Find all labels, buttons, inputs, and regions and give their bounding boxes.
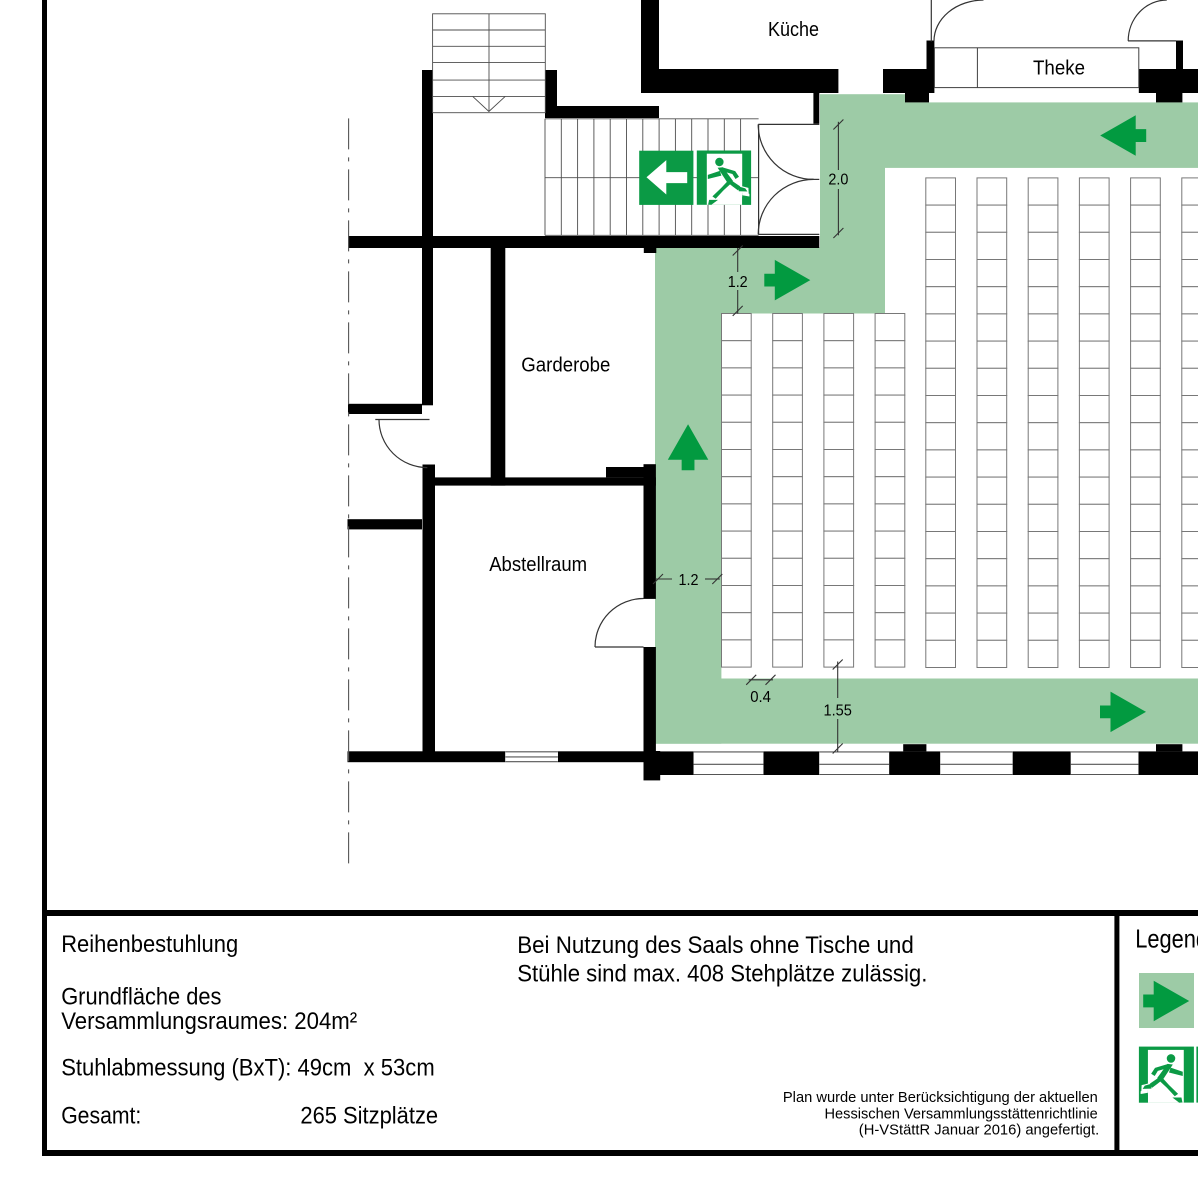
svg-text:1.55: 1.55 [824, 702, 852, 719]
svg-text:Plan wurde unter Berücksichtig: Plan wurde unter Berücksichtigung der ak… [783, 1090, 1098, 1106]
svg-text:Stuhlabmessung (BxT): 49cm x: Stuhlabmessung (BxT): 49cm x 53cm [61, 1055, 435, 1082]
svg-text:Bei Nutzung des Saals ohne Tis: Bei Nutzung des Saals ohne Tische und [517, 932, 914, 959]
svg-text:1.2: 1.2 [679, 572, 699, 589]
svg-text:Versammlungsraumes: 204m²: Versammlungsraumes: 204m² [61, 1008, 357, 1035]
svg-text:Hessischen Versammlungsstätten: Hessischen Versammlungsstättenrichtlinie [825, 1106, 1098, 1122]
svg-text:Theke: Theke [1033, 57, 1085, 79]
svg-text:Legende: Legende [1135, 926, 1198, 954]
svg-text:(H-VStättR Januar 2016) angefe: (H-VStättR Januar 2016) angefertigt. [859, 1123, 1099, 1139]
svg-text:265 Sitzplätze: 265 Sitzplätze [300, 1103, 438, 1130]
svg-text:Grundfläche des: Grundfläche des [61, 983, 221, 1010]
svg-text:Reihenbestuhlung: Reihenbestuhlung [61, 931, 238, 958]
svg-text:Abstellraum: Abstellraum [489, 554, 587, 576]
svg-text:0.4: 0.4 [750, 689, 771, 706]
svg-text:Garderobe: Garderobe [521, 354, 610, 376]
svg-text:2.0: 2.0 [828, 171, 848, 188]
svg-text:Gesamt:: Gesamt: [61, 1103, 141, 1130]
svg-text:Stühle sind max. 408 Stehplätz: Stühle sind max. 408 Stehplätze zulässig… [517, 960, 927, 987]
svg-text:Küche: Küche [768, 19, 819, 41]
svg-text:1.2: 1.2 [728, 274, 748, 291]
